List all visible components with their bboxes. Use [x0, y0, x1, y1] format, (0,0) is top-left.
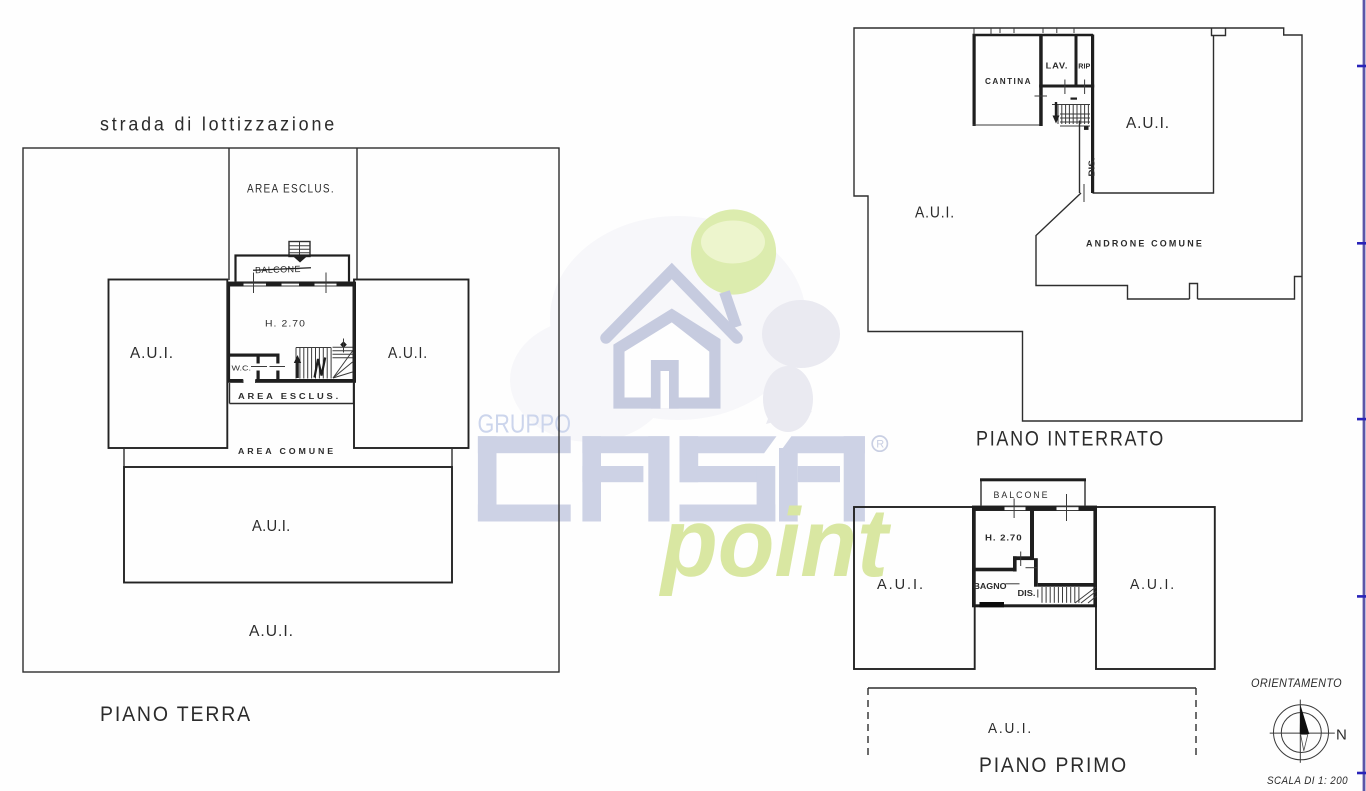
svg-text:PIANO PRIMO: PIANO PRIMO	[979, 754, 1128, 777]
svg-text:H. 2.70: H. 2.70	[985, 533, 1023, 543]
svg-text:BALCONE: BALCONE	[994, 490, 1050, 500]
svg-text:A.U.I.: A.U.I.	[1126, 115, 1170, 132]
svg-text:A.U.I.: A.U.I.	[915, 205, 955, 222]
svg-text:H. 2.70: H. 2.70	[265, 319, 306, 330]
svg-text:LAV.: LAV.	[1046, 61, 1069, 70]
svg-text:R: R	[876, 439, 884, 451]
svg-text:strada di lottizzazione: strada di lottizzazione	[100, 115, 337, 136]
svg-text:A.U.I.: A.U.I.	[252, 518, 291, 535]
svg-text:ANDRONE COMUNE: ANDRONE COMUNE	[1086, 239, 1204, 249]
svg-text:DIS.: DIS.	[1018, 589, 1036, 598]
svg-text:A.U.I.: A.U.I.	[249, 623, 294, 640]
svg-text:ORIENTAMENTO: ORIENTAMENTO	[1251, 676, 1342, 690]
svg-text:DIS.: DIS.	[1088, 158, 1097, 177]
svg-text:RIP: RIP	[1078, 61, 1090, 70]
svg-text:A.U.I.: A.U.I.	[877, 576, 925, 593]
svg-text:AREA ESCLUS.: AREA ESCLUS.	[247, 184, 335, 196]
svg-text:W.C.: W.C.	[232, 364, 252, 373]
svg-text:GRUPPO: GRUPPO	[478, 409, 572, 439]
svg-text:point: point	[658, 488, 891, 597]
svg-text:BAGNO: BAGNO	[974, 582, 1007, 591]
svg-text:SCALA DI 1: 200: SCALA DI 1: 200	[1267, 775, 1348, 787]
svg-text:CANTINA: CANTINA	[985, 77, 1032, 86]
svg-text:PIANO TERRA: PIANO TERRA	[100, 703, 252, 726]
svg-text:A.U.I.: A.U.I.	[1130, 576, 1176, 593]
svg-text:A.U.I.: A.U.I.	[130, 345, 174, 362]
svg-text:AREA ESCLUS.: AREA ESCLUS.	[238, 391, 341, 401]
svg-text:N: N	[1336, 727, 1347, 744]
svg-text:AREA COMUNE: AREA COMUNE	[238, 446, 336, 456]
svg-text:PIANO INTERRATO: PIANO INTERRATO	[976, 428, 1165, 451]
svg-text:A.U.I.: A.U.I.	[388, 345, 428, 362]
svg-text:A.U.I.: A.U.I.	[988, 720, 1033, 737]
